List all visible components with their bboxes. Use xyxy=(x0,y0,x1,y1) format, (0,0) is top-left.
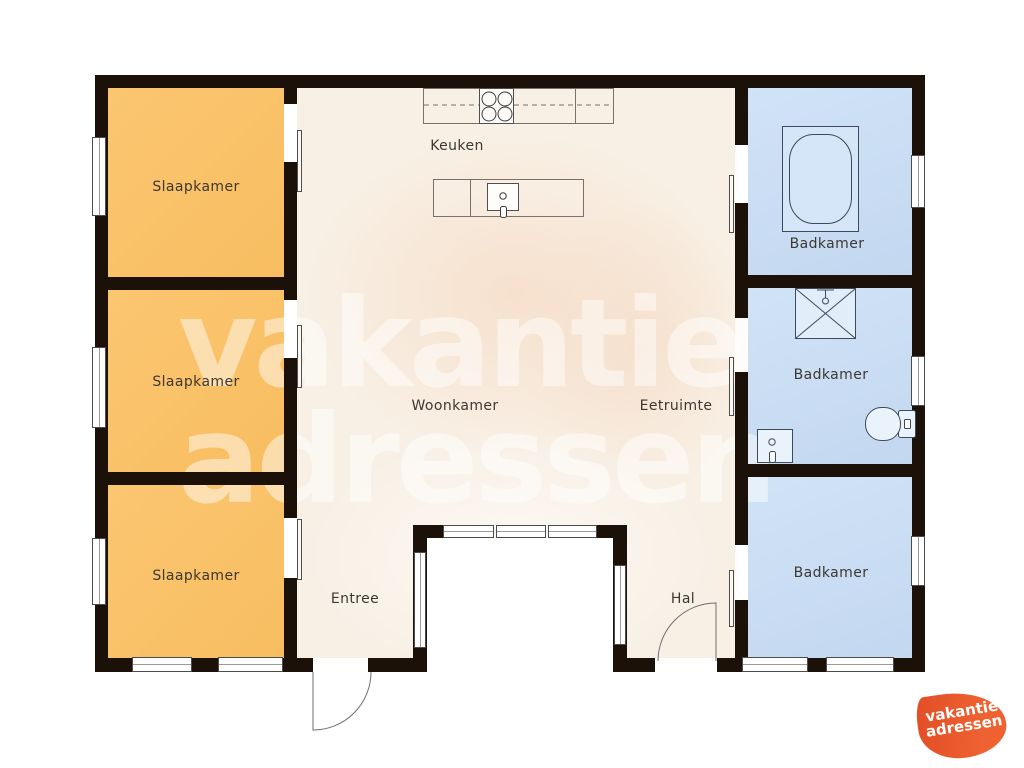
vakantieadressen-logo: vakantie adressen xyxy=(918,692,1010,762)
hall-door-swing xyxy=(658,603,716,661)
room-label-bedroom-2: Slaapkamer xyxy=(152,374,239,390)
room-label-dining: Eetruimte xyxy=(640,398,713,414)
washbasin-icon xyxy=(758,430,793,463)
kitchen-counter xyxy=(424,89,614,124)
room-label-hall: Hal xyxy=(671,591,695,607)
room-label-bedroom-3: Slaapkamer xyxy=(152,568,239,584)
room-label-kitchen: Keuken xyxy=(430,138,483,154)
room-label-entry: Entree xyxy=(331,591,379,607)
bathtub-icon xyxy=(783,127,859,232)
room-label-bathroom-1: Badkamer xyxy=(790,236,865,252)
room-label-bathroom-2: Badkamer xyxy=(794,367,869,383)
entry-door-swing xyxy=(313,672,371,730)
toilet-icon xyxy=(866,408,916,441)
room-label-living: Woonkamer xyxy=(411,398,498,414)
shower-icon xyxy=(796,289,856,339)
stove-icon xyxy=(480,89,514,124)
floorplan-canvas: vakantie adressen xyxy=(0,0,1024,768)
room-label-bathroom-3: Badkamer xyxy=(794,565,869,581)
room-label-bedroom-1: Slaapkamer xyxy=(152,179,239,195)
